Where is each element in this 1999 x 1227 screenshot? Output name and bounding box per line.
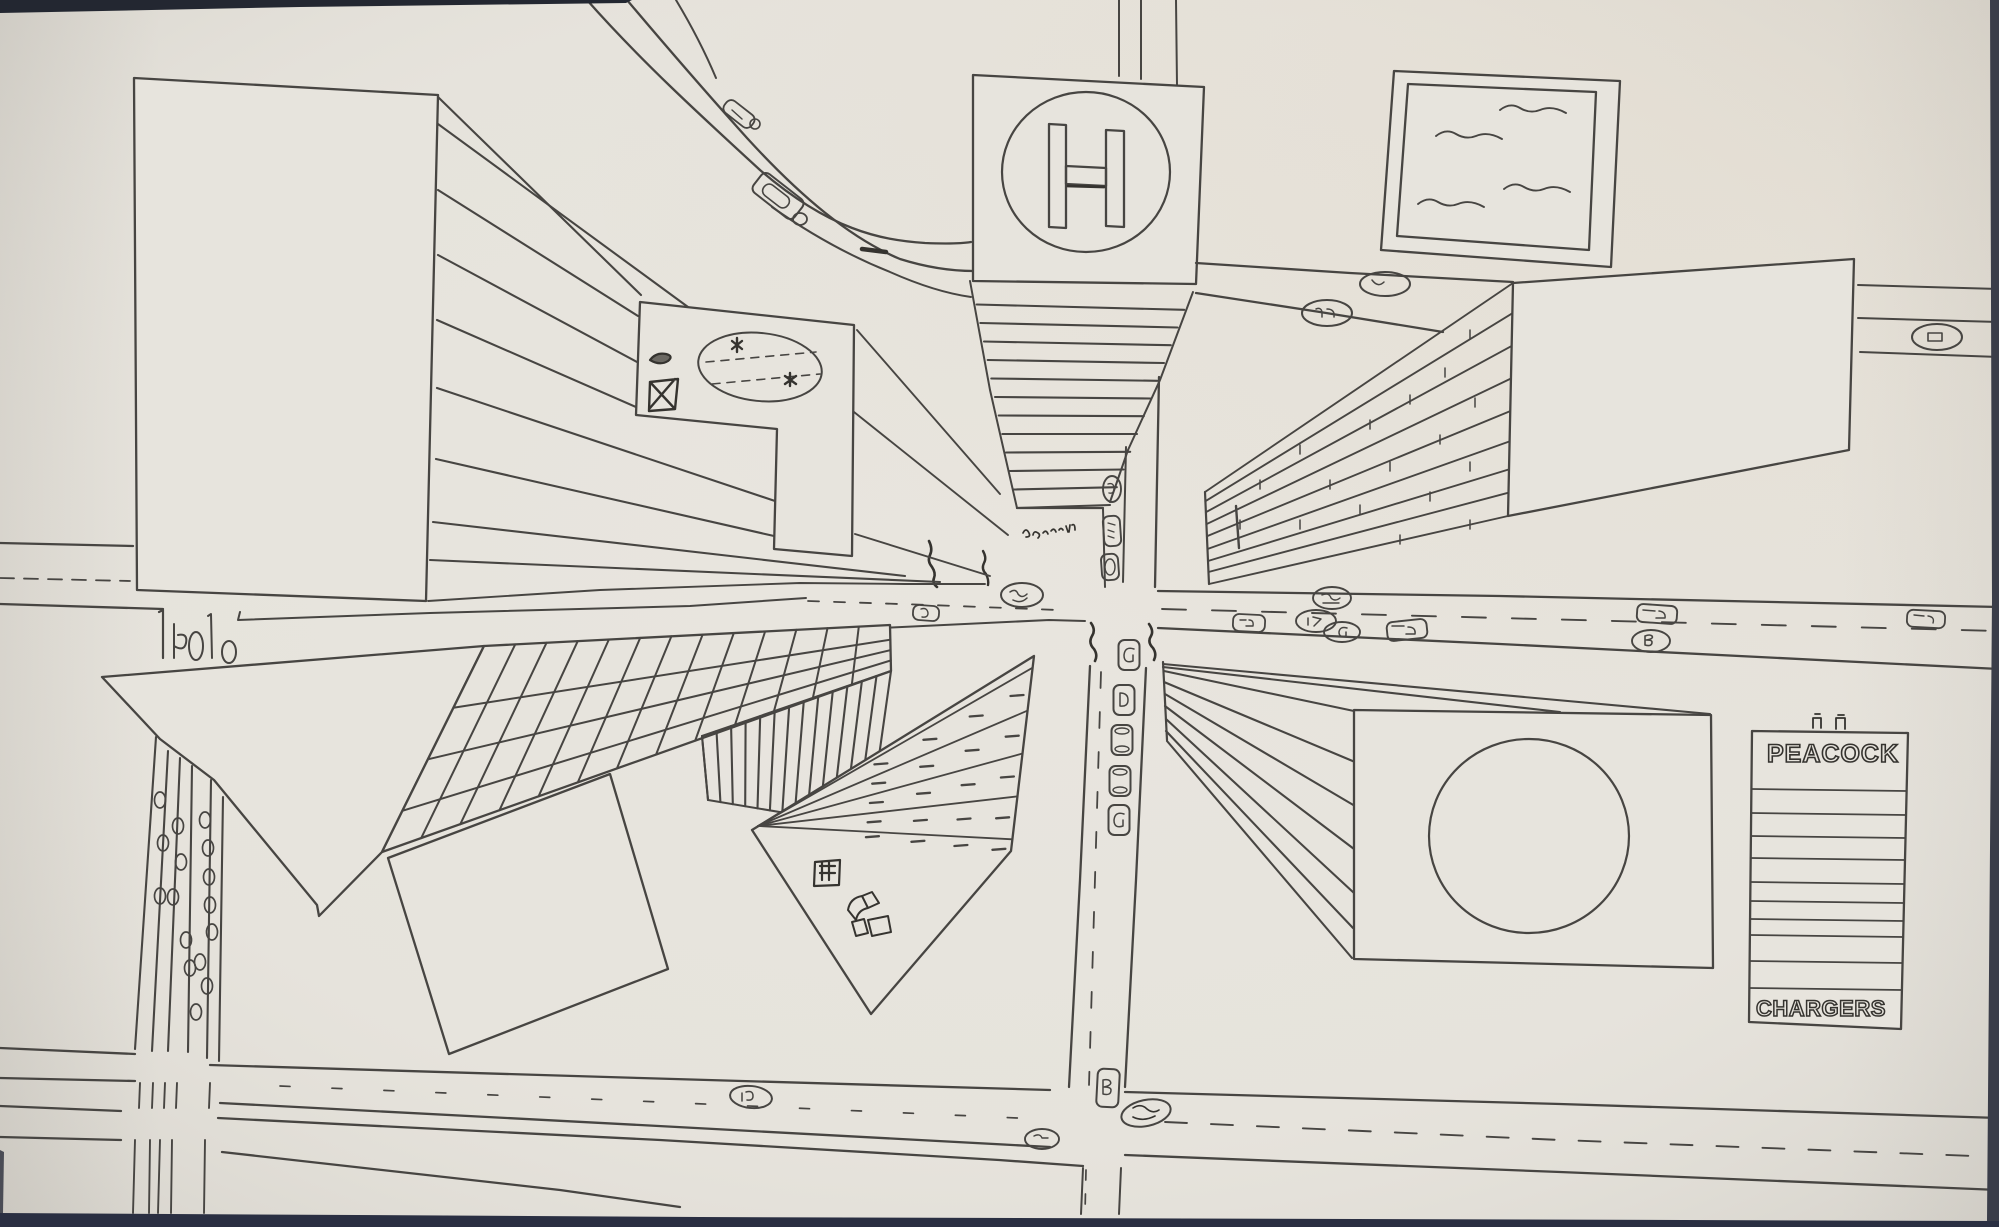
- svg-text:CHARGERS: CHARGERS: [1756, 996, 1886, 1021]
- svg-text:PEACOCK: PEACOCK: [1767, 740, 1899, 768]
